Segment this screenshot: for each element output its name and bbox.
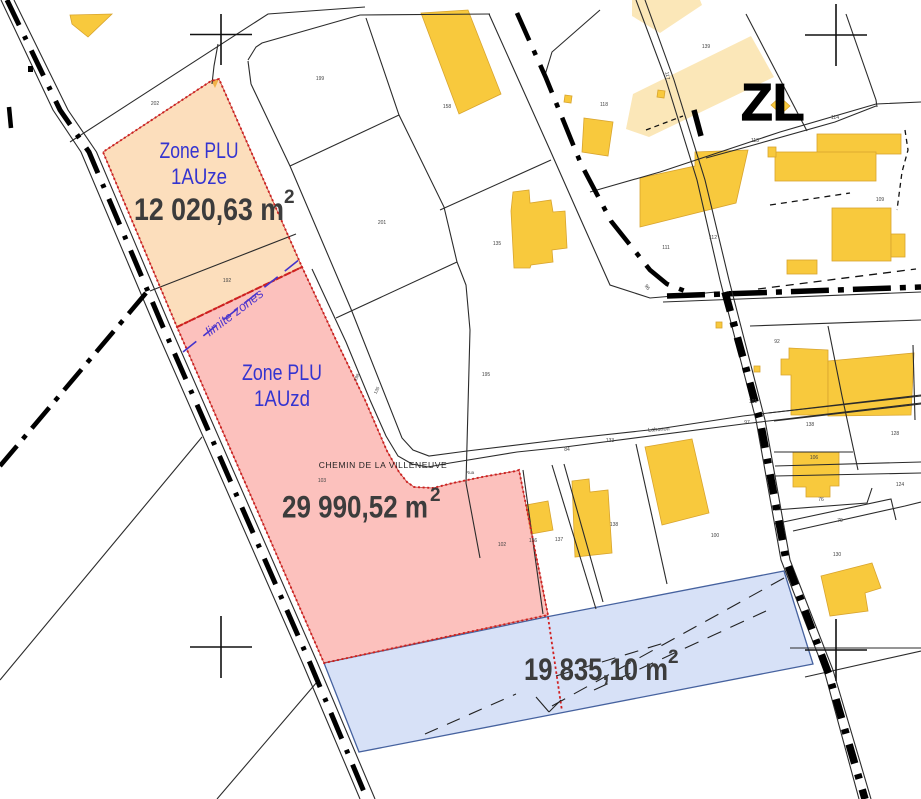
svg-text:195: 195 [482,372,491,378]
svg-text:192: 192 [223,278,232,284]
svg-text:128: 128 [891,431,900,437]
svg-text:133: 133 [606,438,615,444]
svg-text:1AUze: 1AUze [171,164,227,189]
svg-text:CHEMIN DE LA VILLENEUVE: CHEMIN DE LA VILLENEUVE [319,460,448,470]
svg-text:97: 97 [744,420,750,426]
svg-text:Zone PLU: Zone PLU [160,138,239,163]
svg-text:124: 124 [896,482,905,488]
svg-text:202: 202 [151,101,160,107]
svg-text:79: 79 [837,518,843,524]
svg-text:1AUzd: 1AUzd [254,386,310,411]
svg-text:101: 101 [749,399,758,405]
svg-text:139: 139 [702,44,711,50]
svg-text:100: 100 [711,533,720,539]
svg-text:136: 136 [529,538,538,544]
svg-text:138: 138 [610,522,619,528]
svg-text:135: 135 [493,241,502,247]
svg-text:2: 2 [430,485,441,506]
svg-text:84: 84 [564,447,570,453]
svg-text:130: 130 [833,552,842,558]
svg-text:ZL: ZL [741,74,805,132]
svg-text:158: 158 [443,104,452,110]
svg-text:137: 137 [555,537,564,543]
svg-text:2: 2 [668,647,679,668]
svg-text:114: 114 [831,115,839,121]
svg-text:113: 113 [751,138,759,144]
svg-text:111: 111 [662,245,670,251]
svg-text:103: 103 [318,478,327,484]
svg-text:2: 2 [284,187,295,208]
svg-text:76: 76 [818,497,824,503]
svg-text:12 020,63 m: 12 020,63 m [134,191,284,227]
svg-text:138: 138 [806,422,815,428]
svg-text:102: 102 [498,542,507,548]
svg-text:106: 106 [810,455,819,461]
svg-text:Rua: Rua [466,470,475,475]
svg-text:19 835,10 m: 19 835,10 m [524,651,668,687]
svg-text:92: 92 [774,339,780,345]
svg-text:Zone PLU: Zone PLU [242,360,322,385]
svg-text:29 990,52 m: 29 990,52 m [282,489,428,525]
svg-text:199: 199 [316,76,325,82]
svg-text:118: 118 [600,102,608,108]
svg-text:201: 201 [378,220,387,226]
svg-text:109: 109 [876,197,885,203]
svg-text:112: 112 [709,235,717,241]
